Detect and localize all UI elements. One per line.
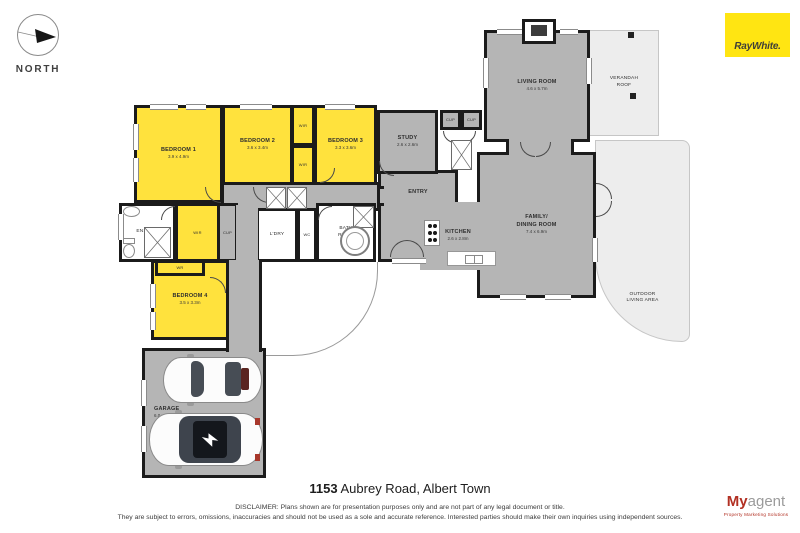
window bbox=[150, 284, 156, 308]
address-street: Aubrey Road, Albert Town bbox=[338, 481, 491, 496]
window bbox=[133, 158, 139, 182]
room-cupboard-hall: CUP bbox=[217, 203, 238, 262]
room-verandah-roof: VERANDAH ROOF bbox=[589, 30, 659, 136]
address: 1153 Aubrey Road, Albert Town bbox=[0, 481, 800, 496]
room-bedroom-2: BEDROOM 23.6 x 3.4m bbox=[222, 105, 293, 185]
window bbox=[483, 58, 489, 88]
window bbox=[150, 312, 156, 330]
raywhite-wordmark: RayWhite. bbox=[734, 41, 781, 52]
hall-cupboard bbox=[266, 187, 286, 209]
room-passage bbox=[236, 205, 258, 262]
window bbox=[141, 426, 147, 452]
window bbox=[141, 380, 147, 406]
disclaimer-line-2: They are subject to errors, omissions, i… bbox=[0, 513, 800, 523]
ensuite-shower bbox=[144, 227, 171, 258]
window bbox=[560, 29, 578, 35]
room-living-room: LIVING ROOM4.6 x 5.7m bbox=[484, 30, 590, 142]
window bbox=[500, 294, 526, 300]
window bbox=[545, 294, 571, 300]
window bbox=[133, 124, 139, 150]
room-outdoor-living-area: OUTDOOR LIVING AREA bbox=[595, 140, 690, 342]
window bbox=[586, 58, 592, 84]
myagent-my: My bbox=[727, 493, 748, 510]
room-wir-2: WIR bbox=[291, 105, 315, 146]
room-wir-3: WIR bbox=[291, 145, 315, 185]
window bbox=[592, 238, 598, 262]
entry-cupboard bbox=[451, 140, 472, 170]
room-garage: GARAGE6.0 x 6.6m bbox=[142, 348, 266, 478]
room-wir-master: WIR bbox=[175, 203, 220, 262]
room-wc: WC bbox=[297, 208, 317, 262]
room-laundry: L'DRY bbox=[256, 208, 298, 262]
window bbox=[325, 104, 355, 110]
room-kitchen: KITCHEN2.6 x 2.8m bbox=[420, 202, 496, 270]
window bbox=[240, 104, 272, 110]
room-cupboard-2: CUP bbox=[461, 110, 482, 130]
myagent-logo: Myagent Property Marketing Solutions bbox=[720, 494, 792, 517]
window bbox=[392, 258, 426, 264]
floorplan-page: { "header": { "north_label": "NORTH", "b… bbox=[0, 0, 800, 533]
disclaimer-line-1: DISCLAIMER: Plans shown are for presenta… bbox=[0, 503, 800, 513]
room-cupboard-1: CUP bbox=[440, 110, 461, 130]
room-rear-porch bbox=[263, 262, 378, 356]
address-number: 1153 bbox=[309, 481, 337, 496]
disclaimer: DISCLAIMER: Plans shown are for presenta… bbox=[0, 503, 800, 523]
north-compass: NORTH bbox=[15, 13, 61, 75]
room-corridor bbox=[226, 260, 262, 352]
window bbox=[497, 29, 525, 35]
window bbox=[186, 104, 206, 110]
raywhite-logo: RayWhite. bbox=[725, 13, 790, 57]
north-label: NORTH bbox=[15, 64, 61, 75]
myagent-agent: agent bbox=[748, 493, 786, 510]
compass-icon bbox=[16, 13, 60, 57]
hall-cupboard bbox=[287, 187, 307, 209]
floor-plan: VERANDAH ROOFOUTDOOR LIVING AREALIVING R… bbox=[0, 0, 800, 533]
shower bbox=[353, 206, 374, 228]
window bbox=[150, 104, 178, 110]
window bbox=[118, 214, 124, 240]
myagent-tagline: Property Marketing Solutions bbox=[720, 512, 792, 517]
room-wardrobe-4: WR bbox=[155, 260, 205, 276]
